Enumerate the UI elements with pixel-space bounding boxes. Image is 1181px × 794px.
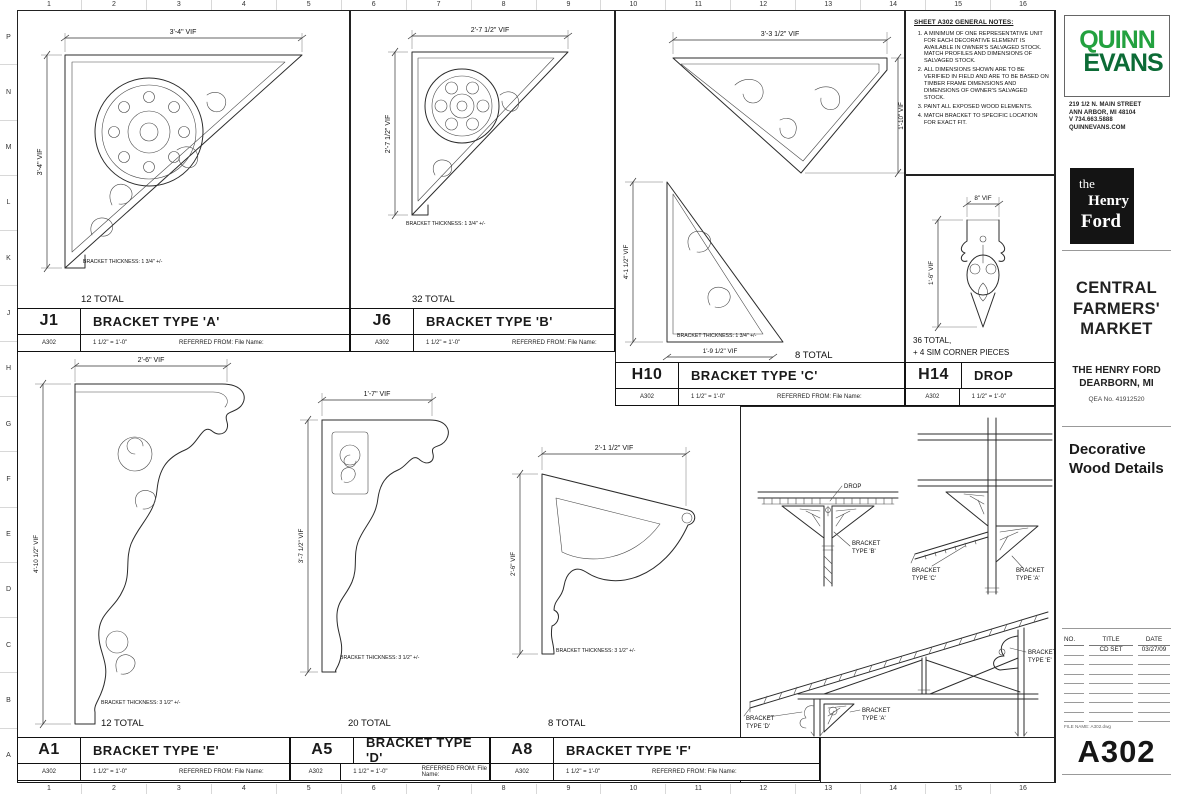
grid-number-top: 13 (796, 0, 861, 10)
dim-right-label: 1'-10" VIF (898, 102, 905, 130)
detail-id: H14 (906, 363, 962, 388)
grid-number-bottom: 15 (926, 784, 991, 794)
grid-letter-left: J (0, 286, 17, 341)
detail-scale: 1 1/2" = 1'-0" (414, 335, 512, 351)
bracket-e-drawing: 2'-6" VIF 4'-10 1/2" VIF BRACKET THICKNE… (17, 352, 290, 737)
thickness-note: BRACKET THICKNESS: 1 3/4" +/- (406, 221, 486, 227)
general-notes-heading: SHEET A302 GENERAL NOTES: (914, 19, 1049, 26)
drawing-sheet: 12345678910111213141516 1234567891011121… (0, 0, 1181, 794)
grid-number-bottom: 14 (861, 784, 926, 794)
titlebar-h10: H10 BRACKET TYPE 'C' A302 1 1/2" = 1'-0"… (615, 362, 905, 406)
general-notes-list: A MINIMUM OF ONE REPRESENTATIVE UNIT FOR… (914, 31, 1049, 127)
grid-letter-left: H (0, 342, 17, 397)
architect-name-line2: EVANS (1065, 52, 1169, 75)
grid-letter-left: B (0, 673, 17, 728)
grid-number-bottom: 12 (731, 784, 796, 794)
grid-number-top: 15 (926, 0, 991, 10)
detail-id: J1 (18, 309, 81, 334)
grid-number-bottom: 16 (991, 784, 1055, 794)
general-notes: SHEET A302 GENERAL NOTES: A MINIMUM OF O… (905, 10, 1055, 175)
detail-referred: REFERRED FROM: File Name: (777, 389, 862, 405)
thickness-note: BRACKET THICKNESS: 1 3/4" +/- (83, 259, 163, 265)
grid-number-bottom: 10 (601, 784, 666, 794)
panel-empty-titlebar (820, 737, 1055, 783)
revision-blank-row (1064, 656, 1170, 666)
dim-side-label: 2'-7 1/2" VIF (385, 115, 392, 153)
client-logo-the: the (1079, 176, 1095, 192)
bracket-d-drawing: 1'-7" VIF 3'-7 1/2" VIF BRACKET THICKNES… (290, 352, 490, 737)
revision-header: NO. TITLE DATE (1064, 636, 1170, 646)
owner-line1: THE HENRY FORD (1059, 364, 1174, 377)
detail-title: DROP (962, 363, 1054, 388)
titlebar-a8: A8 BRACKET TYPE 'F' A302 1 1/2" = 1'-0" … (490, 737, 820, 781)
section-label-bracket-a-lower-line2: TYPE 'A' (862, 716, 886, 722)
total-count: 32 TOTAL (412, 294, 455, 305)
detail-scale: 1 1/2" = 1'-0" (81, 764, 179, 780)
revision-title: CD SET (1089, 646, 1133, 656)
titlebar-j1: J1 BRACKET TYPE 'A' A302 1 1/2" = 1'-0" … (17, 308, 350, 352)
titlebar-j6: J6 BRACKET TYPE 'B' A302 1 1/2" = 1'-0" … (350, 308, 615, 352)
bracket-a-drawing: 3'-4" VIF 3'-4" VIF BRACKET THICKNESS: 1… (17, 10, 350, 308)
grid-number-top: 3 (147, 0, 212, 10)
section-label-bracket-c-line1: BRACKET (912, 568, 941, 574)
thickness-note: BRACKET THICKNESS: 3 1/2" +/- (556, 648, 636, 654)
detail-scale: 1 1/2" = 1'-0" (679, 389, 777, 405)
revision-blank-row (1064, 703, 1170, 713)
detail-sheet-ref: A302 (18, 764, 81, 780)
revision-no (1064, 646, 1084, 656)
grid-number-top: 16 (991, 0, 1055, 10)
divider (1062, 426, 1171, 427)
grid-number-bottom: 6 (342, 784, 407, 794)
grid-left: PNMLKJHGFEDCBA (0, 10, 17, 783)
grid-letter-left: M (0, 121, 17, 176)
grid-letter-left: D (0, 563, 17, 618)
dim-top-label: 8" VIF (974, 195, 991, 202)
section-label-bracket-a-upper-line1: BRACKET (1016, 568, 1045, 574)
revision-col-date: DATE (1138, 636, 1170, 646)
dim-side-label: 2'-6" VIF (510, 552, 517, 576)
client-logo: the Henry Ford (1070, 168, 1134, 244)
grid-letter-left: P (0, 10, 17, 65)
total-count: 20 TOTAL (348, 718, 391, 729)
titlebar-a5: A5 BRACKET TYPE 'D' A302 1 1/2" = 1'-0" … (290, 737, 490, 781)
divider (1062, 628, 1171, 629)
dim-side-label: 3'-7 1/2" VIF (298, 529, 305, 564)
section-label-bracket-e-line2: TYPE 'E' (1028, 658, 1052, 664)
dim-top-label: 3'-3 1/2" VIF (761, 31, 799, 38)
detail-title: BRACKET TYPE 'B' (414, 309, 614, 334)
grid-letter-left: K (0, 231, 17, 286)
architect-city: ANN ARBOR, MI 48104 (1069, 110, 1141, 118)
client-logo-henry: Henry (1088, 193, 1129, 210)
detail-id: A5 (291, 738, 354, 763)
assembly-sections-drawing: DROP BRACKET TYPE 'B' BRACKET TYPE 'C' B… (740, 406, 1055, 737)
section-label-bracket-b-line2: TYPE 'B' (852, 549, 876, 555)
thickness-note: BRACKET THICKNESS: 1 3/4" +/- (677, 333, 757, 339)
architect-website: QUINNEVANS.COM (1069, 125, 1141, 133)
total-count: 8 TOTAL (548, 718, 586, 729)
revision-blank-row (1064, 665, 1170, 675)
grid-number-top: 8 (472, 0, 537, 10)
section-label-bracket-d-line1: BRACKET (746, 716, 775, 722)
total-count-line1: 36 TOTAL, (913, 336, 951, 345)
detail-sheet-ref: A302 (351, 335, 414, 351)
dim-top-label: 2'-7 1/2" VIF (471, 27, 509, 34)
revision-row-cdset: CD SET 03/27/09 (1064, 646, 1170, 656)
grid-number-bottom: 4 (212, 784, 277, 794)
section-label-bracket-b-line1: BRACKET (852, 541, 881, 547)
revision-col-no: NO. (1064, 636, 1084, 646)
grid-bottom: 12345678910111213141516 (17, 784, 1055, 794)
dim-top-label: 3'-4" VIF (170, 29, 197, 36)
dim-side-label: 4'-10 1/2" VIF (33, 535, 40, 573)
divider (1062, 774, 1171, 775)
bracket-b-drawing: 2'-7 1/2" VIF 2'-7 1/2" VIF BRACKET THIC… (350, 10, 615, 308)
detail-referred: REFERRED FROM: File Name: (179, 764, 264, 780)
grid-letter-left: L (0, 176, 17, 231)
owner-line2: DEARBORN, MI (1059, 377, 1174, 390)
thickness-note: BRACKET THICKNESS: 3 1/2" +/- (340, 655, 420, 661)
bracket-c-drawing: 3'-3 1/2" VIF 1'-10" VIF 4'-1 1/2" VIF B… (615, 10, 905, 362)
revision-blank-rows (1064, 656, 1170, 723)
titlebar-h14: H14 DROP A302 1 1/2" = 1'-0" (905, 362, 1055, 406)
detail-referred: REFERRED FROM: File Name: (652, 764, 737, 780)
grid-number-top: 10 (601, 0, 666, 10)
detail-id: A8 (491, 738, 554, 763)
detail-referred: REFERRED FROM: File Name: (512, 335, 597, 351)
detail-sheet-ref: A302 (906, 389, 960, 405)
dim-side-label: 3'-4" VIF (37, 149, 44, 176)
revision-blank-row (1064, 684, 1170, 694)
grid-letter-left: N (0, 65, 17, 120)
grid-number-top: 12 (731, 0, 796, 10)
grid-number-top: 6 (342, 0, 407, 10)
grid-letter-left: G (0, 397, 17, 452)
dim-top-label: 2'-1 1/2" VIF (595, 445, 633, 452)
drop-drawing: 8" VIF 1'-6" VIF 36 TOTAL, + 4 SIM CORNE… (905, 175, 1055, 362)
section-label-bracket-a-lower-line1: BRACKET (862, 708, 891, 714)
general-note-item: ALL DIMENSIONS SHOWN ARE TO BE VERIFIED … (924, 67, 1049, 101)
detail-title: BRACKET TYPE 'D' (354, 738, 489, 763)
file-name-label: FILE NAME: A302.dwg (1064, 724, 1111, 729)
job-number: QEA No. 41912520 (1059, 396, 1174, 403)
total-count-line2: + 4 SIM CORNER PIECES (913, 348, 1009, 357)
total-count: 12 TOTAL (101, 718, 144, 729)
grid-number-top: 4 (212, 0, 277, 10)
grid-number-bottom: 11 (666, 784, 731, 794)
revision-date: 03/27/09 (1138, 646, 1170, 656)
revision-table: NO. TITLE DATE CD SET 03/27/09 (1064, 636, 1170, 722)
project-owner: THE HENRY FORD DEARBORN, MI (1059, 364, 1174, 390)
detail-title: BRACKET TYPE 'F' (554, 738, 819, 763)
detail-sheet-ref: A302 (491, 764, 554, 780)
detail-scale: 1 1/2" = 1'-0" (341, 764, 421, 780)
grid-letter-left: A (0, 729, 17, 783)
grid-number-top: 11 (666, 0, 731, 10)
detail-scale: 1 1/2" = 1'-0" (81, 335, 179, 351)
detail-referred: REFERRED FROM: File Name: (422, 764, 489, 780)
architect-phone: V 734.663.5888 (1069, 117, 1141, 125)
section-label-bracket-d-line2: TYPE 'D' (746, 724, 770, 730)
grid-letter-left: E (0, 508, 17, 563)
grid-number-top: 9 (537, 0, 602, 10)
titlebar-a1: A1 BRACKET TYPE 'E' A302 1 1/2" = 1'-0" … (17, 737, 290, 781)
architect-street: 219 1/2 N. MAIN STREET (1069, 102, 1141, 110)
dim-side-label: 4'-1 1/2" VIF (623, 245, 630, 280)
client-logo-ford: Ford (1081, 211, 1121, 233)
grid-number-bottom: 1 (17, 784, 82, 794)
grid-number-top: 5 (277, 0, 342, 10)
sheet-title: Decorative Wood Details (1069, 440, 1164, 478)
titleblock: QUINN EVANS 219 1/2 N. MAIN STREET ANN A… (1055, 10, 1176, 783)
detail-title: BRACKET TYPE 'E' (81, 738, 289, 763)
revision-blank-row (1064, 713, 1170, 723)
detail-id: J6 (351, 309, 414, 334)
grid-number-top: 1 (17, 0, 82, 10)
detail-scale: 1 1/2" = 1'-0" (554, 764, 652, 780)
detail-title: BRACKET TYPE 'A' (81, 309, 349, 334)
section-label-drop: DROP (844, 484, 861, 490)
divider (1062, 250, 1171, 251)
grid-number-bottom: 13 (796, 784, 861, 794)
grid-number-top: 7 (407, 0, 472, 10)
detail-id: A1 (18, 738, 81, 763)
detail-title: BRACKET TYPE 'C' (679, 363, 904, 388)
grid-number-bottom: 8 (472, 784, 537, 794)
grid-number-top: 2 (82, 0, 147, 10)
detail-sheet-ref: A302 (291, 764, 341, 780)
detail-sheet-ref: A302 (616, 389, 679, 405)
detail-sheet-ref: A302 (18, 335, 81, 351)
grid-number-bottom: 7 (407, 784, 472, 794)
grid-number-bottom: 3 (147, 784, 212, 794)
architect-logo: QUINN EVANS (1064, 15, 1170, 97)
grid-number-bottom: 5 (277, 784, 342, 794)
dim-side-label: 1'-6" VIF (928, 261, 935, 285)
section-label-bracket-e-line1: BRACKET (1028, 650, 1057, 656)
general-note-item: MATCH BRACKET TO SPECIFIC LOCATION FOR E… (924, 113, 1049, 127)
dim-top-label: 2'-6" VIF (138, 357, 165, 364)
grid-letter-left: C (0, 618, 17, 673)
grid-number-bottom: 2 (82, 784, 147, 794)
general-note-item: A MINIMUM OF ONE REPRESENTATIVE UNIT FOR… (924, 31, 1049, 65)
detail-id: H10 (616, 363, 679, 388)
dim-top-label: 1'-7" VIF (364, 391, 391, 398)
revision-blank-row (1064, 675, 1170, 685)
thickness-note: BRACKET THICKNESS: 3 1/2" +/- (101, 700, 181, 706)
section-label-bracket-c-line2: TYPE 'C' (912, 576, 936, 582)
detail-scale: 1 1/2" = 1'-0" (960, 389, 1054, 405)
total-count: 12 TOTAL (81, 294, 124, 305)
revision-blank-row (1064, 694, 1170, 704)
project-title: CENTRAL FARMERS' MARKET (1059, 278, 1174, 340)
detail-referred: REFERRED FROM: File Name: (179, 335, 264, 351)
grid-number-bottom: 9 (537, 784, 602, 794)
section-label-bracket-a-upper-line2: TYPE 'A' (1016, 576, 1040, 582)
architect-address: 219 1/2 N. MAIN STREET ANN ARBOR, MI 481… (1069, 102, 1141, 132)
general-note-item: PAINT ALL EXPOSED WOOD ELEMENTS. (924, 104, 1049, 111)
grid-number-top: 14 (861, 0, 926, 10)
revision-col-title: TITLE (1089, 636, 1133, 646)
grid-letter-left: F (0, 452, 17, 507)
sheet-number: A302 (1056, 734, 1177, 770)
grid-top: 12345678910111213141516 (17, 0, 1055, 10)
